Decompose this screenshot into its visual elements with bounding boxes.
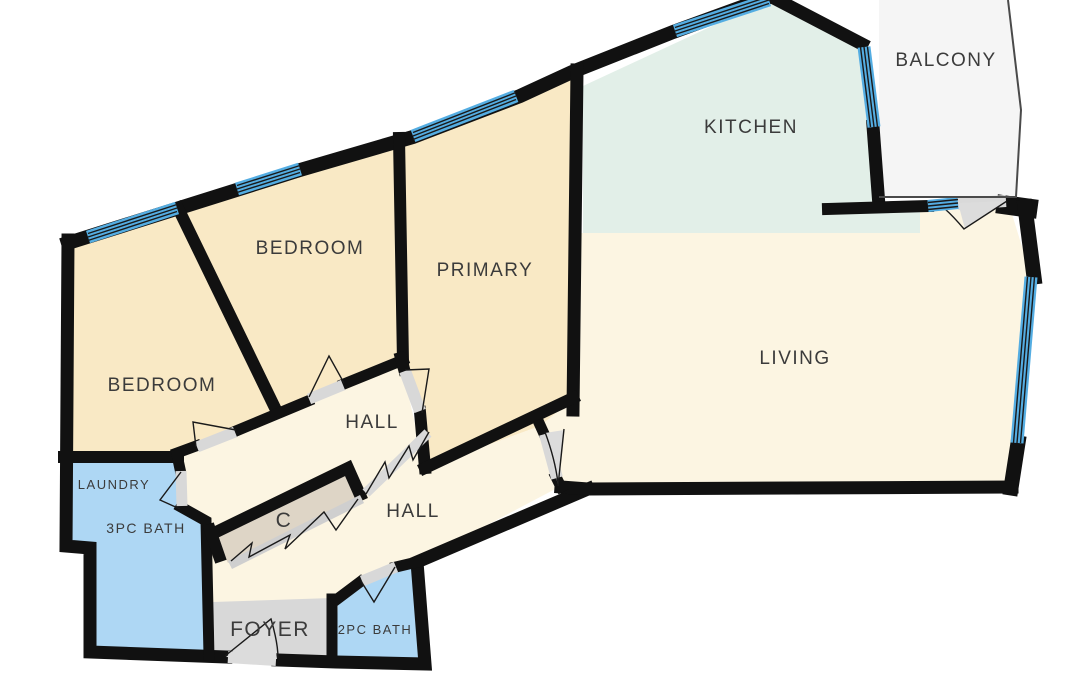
bedroom-primary-wall xyxy=(399,138,403,362)
room-label-balcony: BALCONY xyxy=(895,50,996,71)
room-label-bedroom-mid: BEDROOM xyxy=(256,238,365,259)
room-label-laundry: LAUNDRY xyxy=(78,477,150,492)
room-balcony xyxy=(879,0,1021,197)
room-label-bath-3pc: 3PC BATH xyxy=(106,520,185,536)
room-label-bedroom-left: BEDROOM xyxy=(108,375,217,396)
room-label-hall-upper: HALL xyxy=(345,412,399,433)
floorplan-svg: BALCONY KITCHEN LIVING PRIMARY BEDROOM B… xyxy=(0,0,1080,675)
living-bottom-wall xyxy=(561,487,1012,489)
room-label-kitchen: KITCHEN xyxy=(704,117,798,138)
floorplan-canvas: BALCONY KITCHEN LIVING PRIMARY BEDROOM B… xyxy=(0,0,1080,675)
kitchen-counter-wall xyxy=(828,206,928,209)
window xyxy=(928,200,958,210)
room-label-living: LIVING xyxy=(759,348,830,369)
room-label-bath-2pc: 2PC BATH xyxy=(338,622,413,637)
room-label-closet: C xyxy=(276,509,293,532)
room-label-foyer: FOYER xyxy=(230,618,310,641)
room-label-primary: PRIMARY xyxy=(437,260,534,281)
primary-kitchen-wall xyxy=(573,70,577,410)
room-label-hall-lower: HALL xyxy=(386,501,440,522)
threshold-laundry-door xyxy=(181,471,182,506)
room-living xyxy=(540,201,1031,489)
